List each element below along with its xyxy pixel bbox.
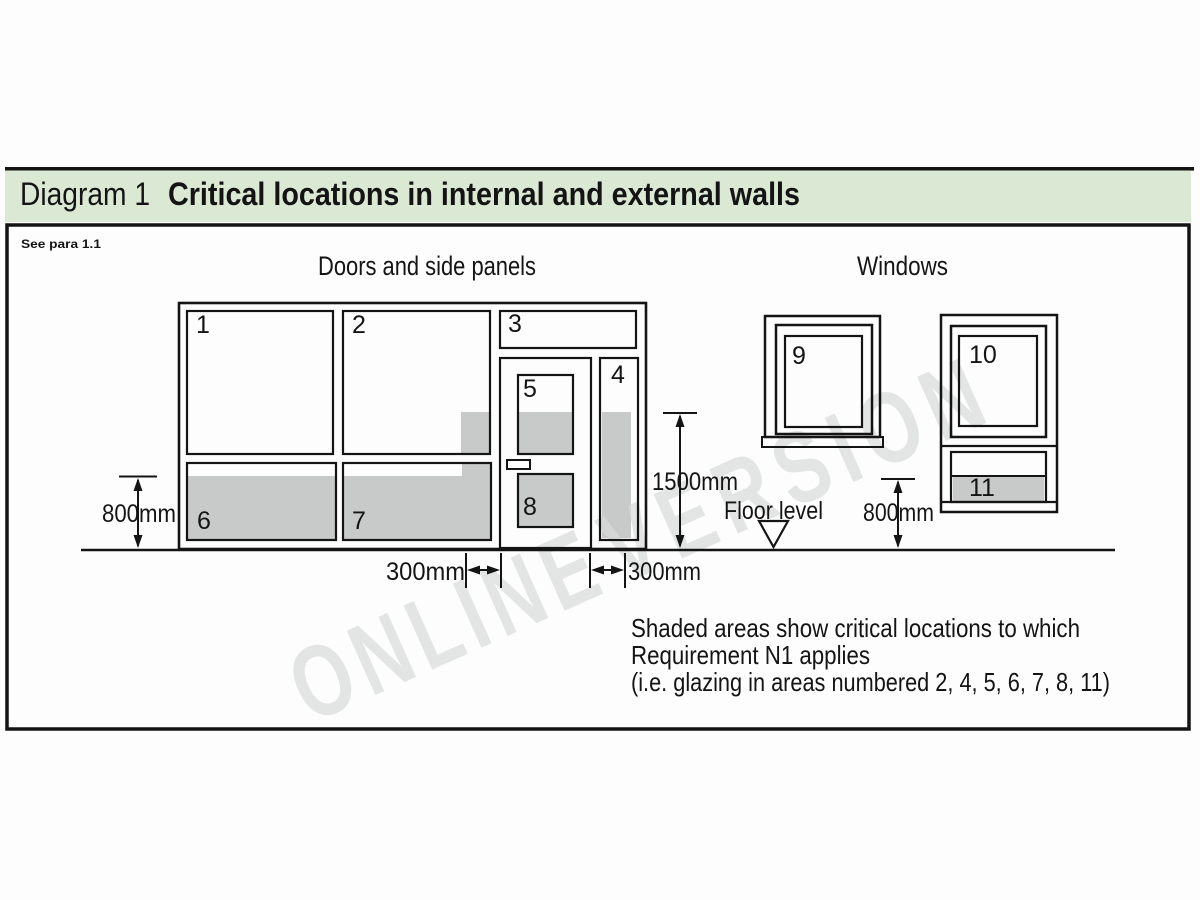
svg-text:1: 1: [196, 311, 210, 339]
svg-text:5: 5: [523, 375, 537, 403]
svg-text:6: 6: [197, 507, 211, 535]
svg-text:2: 2: [352, 311, 366, 339]
svg-text:9: 9: [792, 342, 806, 370]
svg-text:800mm: 800mm: [863, 499, 934, 527]
svg-text:Doors and side panels: Doors and side panels: [318, 251, 536, 281]
svg-text:Shaded areas show critical loc: Shaded areas show critical locations to …: [631, 613, 1080, 643]
svg-text:1500mm: 1500mm: [652, 468, 738, 496]
svg-text:Diagram 1: Diagram 1: [20, 176, 150, 212]
svg-text:(i.e. glazing in areas numbere: (i.e. glazing in areas numbered 2, 4, 5,…: [631, 667, 1110, 697]
svg-text:3: 3: [508, 310, 522, 338]
svg-text:See para 1.1: See para 1.1: [21, 237, 101, 251]
svg-text:7: 7: [352, 507, 366, 535]
svg-text:Requirement N1 applies: Requirement N1 applies: [631, 640, 870, 670]
svg-text:Critical locations in internal: Critical locations in internal and exter…: [168, 176, 800, 212]
svg-text:Windows: Windows: [857, 251, 948, 281]
svg-text:10: 10: [969, 341, 997, 369]
svg-text:300mm: 300mm: [628, 558, 701, 586]
svg-text:300mm: 300mm: [386, 558, 465, 586]
svg-text:4: 4: [611, 361, 625, 389]
svg-text:8: 8: [523, 493, 537, 521]
svg-text:800mm: 800mm: [102, 500, 176, 528]
svg-text:11: 11: [969, 474, 995, 502]
